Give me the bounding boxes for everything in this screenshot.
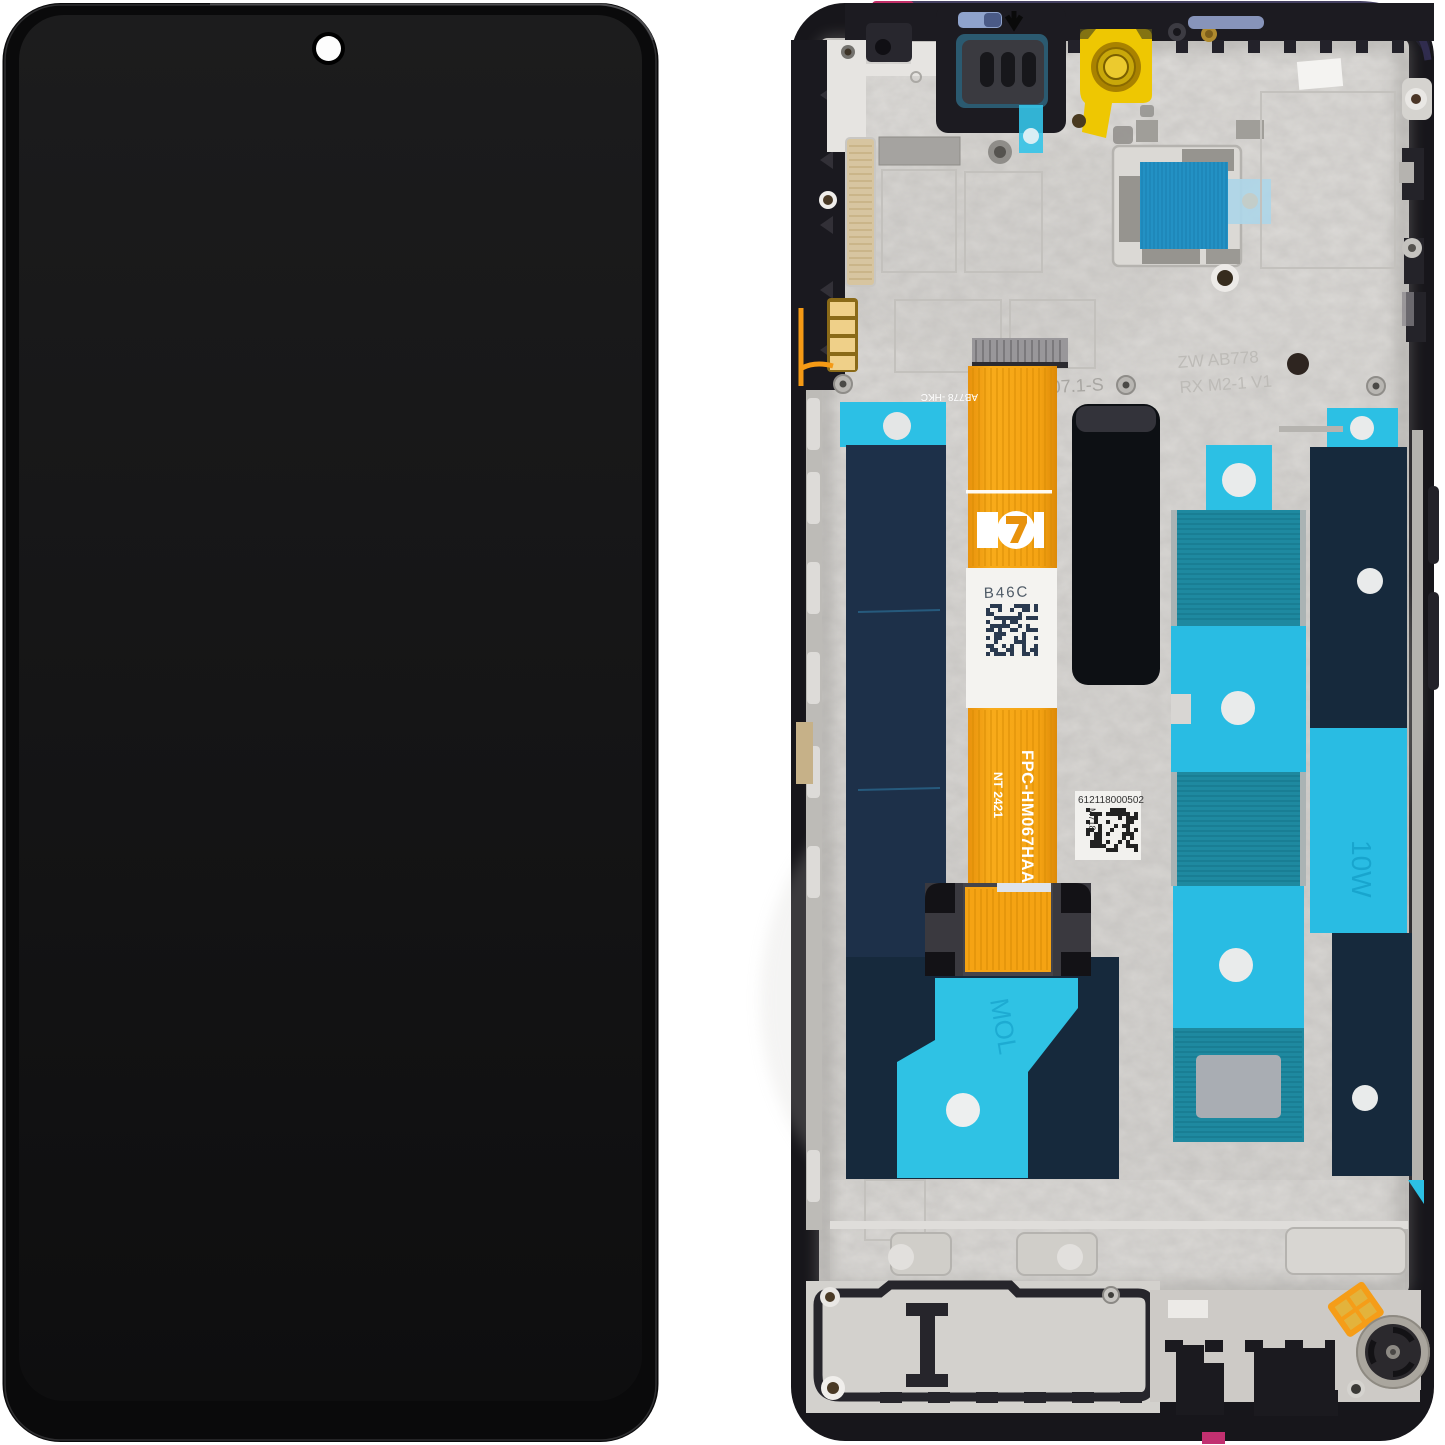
svg-text:07.1-S: 07.1-S: [1050, 374, 1104, 397]
svg-text:612118000502: 612118000502: [1078, 795, 1144, 806]
svg-text:NT 2421: NT 2421: [991, 772, 1005, 818]
svg-text:AB778 -HKC: AB778 -HKC: [921, 391, 978, 402]
svg-text:10W: 10W: [1346, 840, 1377, 898]
svg-text:B46C: B46C: [984, 583, 1030, 602]
